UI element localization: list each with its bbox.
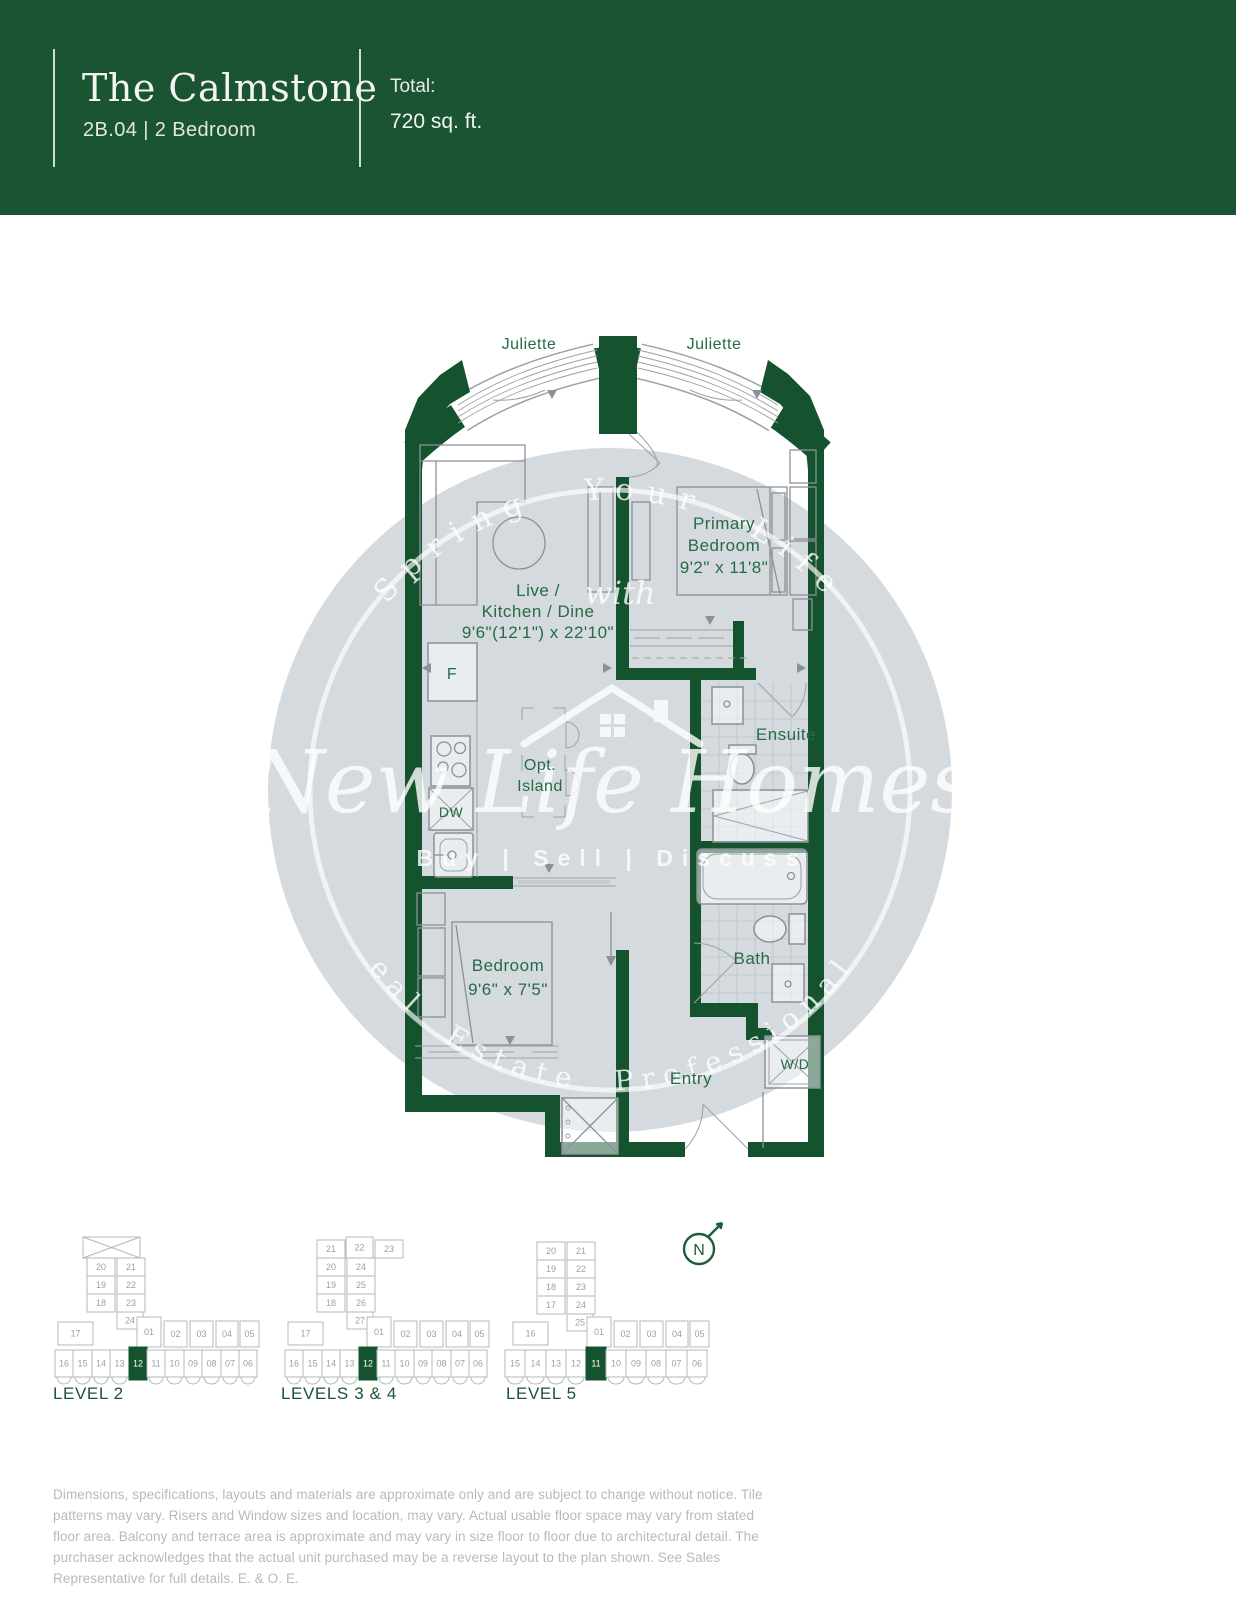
keyplan-unit-number: 05: [694, 1329, 704, 1339]
keyplan-unit-number: 13: [114, 1359, 124, 1369]
floorplan-sheet: The Calmstone 2B.04 | 2 Bedroom Total: 7…: [0, 0, 1236, 1600]
level-label-2: LEVEL 2: [53, 1384, 124, 1404]
keyplan-unit-number: 24: [125, 1316, 135, 1326]
keyplan-unit-number: 05: [474, 1329, 484, 1339]
label-live-line2: Kitchen / Dine: [482, 602, 595, 621]
keyplan-unit-number: 26: [356, 1298, 366, 1308]
keyplan-unit-number: 18: [546, 1282, 556, 1292]
keyplan-balcony-scallop: [241, 1377, 255, 1384]
label-island-line2: Island: [517, 778, 563, 795]
keyplan-unit-number: 13: [344, 1359, 354, 1369]
keyplan-balcony-scallop: [112, 1377, 127, 1384]
keyplan-unit-number: 06: [692, 1359, 702, 1369]
keyplan-balcony-scallop: [204, 1377, 219, 1384]
keyplan-unit-number: 10: [611, 1359, 621, 1369]
ensuite-sink: [712, 687, 743, 724]
label-island-line1: Opt.: [524, 757, 556, 774]
label-primary-line2: Bedroom: [688, 536, 760, 555]
keyplan-unit-number: 14: [326, 1359, 336, 1369]
keyplan-balcony-scallop: [568, 1377, 584, 1384]
north-label: N: [693, 1242, 705, 1259]
keyplan-balcony-scallop: [548, 1377, 564, 1384]
keyplan-unit-number: 08: [206, 1359, 216, 1369]
keyplan-unit-number: 06: [243, 1359, 253, 1369]
keyplan-unit-number: 10: [169, 1359, 179, 1369]
keyplan-balcony-scallop: [471, 1377, 485, 1384]
keyplan-unit-number: 07: [225, 1359, 235, 1369]
label-ensuite: Ensuite: [756, 725, 816, 744]
keyplan-unit-number: 19: [96, 1280, 106, 1290]
keyplan-unit-number: 12: [363, 1359, 373, 1369]
keyplan-unit-number: 10: [399, 1359, 409, 1369]
keyplan-unit-number: 16: [59, 1359, 69, 1369]
keyplan-unit-number: 23: [126, 1298, 136, 1308]
keyplan-unit-number: 04: [452, 1329, 462, 1339]
keyplan-unit-number: 27: [355, 1316, 365, 1326]
keyplan-balcony-scallop: [434, 1377, 449, 1384]
keyplan-balcony-scallop: [75, 1377, 90, 1384]
keyplan-unit-number: 03: [426, 1329, 436, 1339]
keyplan-unit-number: 03: [196, 1329, 206, 1339]
keyplan-balcony-scallop: [324, 1377, 338, 1384]
label-live-line1: Live /: [516, 581, 560, 600]
keyplan-level-2: 2021192218232417010203040516151413121110…: [55, 1237, 259, 1384]
label-washer-dryer: W/D: [781, 1056, 810, 1072]
juliette-window-right: [638, 350, 778, 423]
keyplan-unit-number: 25: [575, 1318, 585, 1328]
keyplan-unit-number: 09: [631, 1359, 641, 1369]
keyplan-unit-number: 01: [594, 1327, 604, 1337]
keyplan-balcony-scallop: [57, 1377, 71, 1384]
floorplan-svg: Spring Your Life with New Life Homes Buy…: [0, 0, 1236, 1600]
keyplan-unit-number: 21: [576, 1246, 586, 1256]
label-juliette-right: Juliette: [687, 336, 742, 353]
keyplan-balcony-scallop: [608, 1377, 624, 1384]
keyplan-unit-number: 03: [646, 1329, 656, 1339]
north-arrow: N: [684, 1223, 722, 1264]
keyplan-unit-number: 14: [530, 1359, 540, 1369]
keyplan-balcony-scallop: [648, 1377, 664, 1384]
keyplan-unit-number: 25: [356, 1280, 366, 1290]
keyplan-unit-number: 15: [510, 1359, 520, 1369]
keyplan-unit-number: 08: [436, 1359, 446, 1369]
keyplan-unit-number: 07: [455, 1359, 465, 1369]
keyplan-unit-number: 20: [546, 1246, 556, 1256]
keyplan-unit-number: 04: [672, 1329, 682, 1339]
keyplan-balcony-scallop: [342, 1377, 357, 1384]
keyplan-unit-number: 18: [326, 1298, 336, 1308]
label-live-dims: 9'6"(12'1") x 22'10": [462, 623, 614, 642]
keyplan-unit-number: 14: [96, 1359, 106, 1369]
keyplan-balcony-scallop: [379, 1377, 393, 1384]
keyplan-unit-number: 21: [126, 1262, 136, 1272]
keyplan-balcony-scallop: [416, 1377, 430, 1384]
keyplan-unit-number: 02: [620, 1329, 630, 1339]
level-label-5: LEVEL 5: [506, 1384, 577, 1404]
keyplan-unit-number: 07: [671, 1359, 681, 1369]
label-bath: Bath: [734, 949, 771, 968]
keyplan-unit-number: 22: [354, 1243, 364, 1253]
keyplan-balcony-scallop: [94, 1377, 108, 1384]
disclaimer-text: Dimensions, specifications, layouts and …: [53, 1484, 765, 1589]
level-label-3-4: LEVELS 3 & 4: [281, 1384, 397, 1404]
keyplan-unit-number: 22: [576, 1264, 586, 1274]
keyplan-unit-number: 23: [384, 1244, 394, 1254]
keyplan-unit-number: 16: [289, 1359, 299, 1369]
keyplan-unit-number: 17: [546, 1300, 556, 1310]
keyplan-levels-3-4: 2122232024192518262717010203040516151413…: [285, 1237, 489, 1384]
keyplan-balcony-scallop: [668, 1377, 685, 1384]
label-primary-dims: 9'2" x 11'8": [680, 558, 769, 577]
keyplan-unit-number: 17: [70, 1329, 80, 1339]
keyplan-unit-number: 13: [551, 1359, 561, 1369]
keyplan-balcony-scallop: [305, 1377, 320, 1384]
keyplan-unit-number: 04: [222, 1329, 232, 1339]
keyplan-unit-number: 11: [151, 1359, 160, 1369]
keyplan-unit-number: 24: [356, 1262, 366, 1272]
keyplan-unit-number: 19: [326, 1280, 336, 1290]
keyplan-unit-number: 12: [571, 1359, 581, 1369]
label-primary-line1: Primary: [693, 514, 755, 533]
keyplan-unit-number: 17: [300, 1329, 310, 1339]
keyplan-balcony-scallop: [186, 1377, 200, 1384]
entry-closet: [562, 1098, 618, 1154]
keyplan-unit-number: 09: [418, 1359, 428, 1369]
keyplan-unit-number: 11: [381, 1359, 390, 1369]
label-bedroom-dims: 9'6" x 7'5": [468, 980, 548, 999]
watermark-brand: New Life Homes: [247, 733, 974, 833]
keyplan-unit-number: 11: [591, 1359, 600, 1369]
label-entry: Entry: [670, 1069, 712, 1088]
keyplans: 2021192218232417010203040516151413121110…: [55, 1237, 709, 1384]
keyplan-balcony-scallop: [167, 1377, 182, 1384]
keyplan-unit-number: 16: [525, 1329, 535, 1339]
toilet-icon: [754, 916, 786, 942]
label-dishwasher: DW: [439, 804, 464, 820]
keyplan-unit-number: 20: [96, 1262, 106, 1272]
keyplan-balcony-scallop: [689, 1377, 705, 1384]
keyplan-balcony-scallop: [397, 1377, 412, 1384]
juliette-window-left: [458, 350, 597, 423]
label-bedroom: Bedroom: [472, 956, 544, 975]
keyplan-unit-number: 15: [307, 1359, 317, 1369]
toilet-tank: [789, 914, 805, 944]
center-pier: [599, 336, 637, 434]
keyplan-unit-number: 06: [473, 1359, 483, 1369]
keyplan-unit-number: 21: [326, 1244, 336, 1254]
keyplan-level-5: 2021192218231724251601020304051514131211…: [505, 1242, 709, 1384]
keyplan-unit-number: 24: [576, 1300, 586, 1310]
keyplan-unit-number: 18: [96, 1298, 106, 1308]
keyplan-unit-number: 20: [326, 1262, 336, 1272]
keyplan-balcony-scallop: [507, 1377, 523, 1384]
keyplan-unit-number: 15: [77, 1359, 87, 1369]
keyplan-balcony-scallop: [527, 1377, 544, 1384]
keyplan-balcony-scallop: [149, 1377, 163, 1384]
keyplan-unit-number: 02: [170, 1329, 180, 1339]
watermark-tagline: Buy | Sell | Discuss: [416, 845, 807, 871]
label-juliette-left: Juliette: [502, 336, 557, 353]
keyplan-unit-number: 22: [126, 1280, 136, 1290]
keyplan-unit-number: 12: [133, 1359, 143, 1369]
keyplan-unit-number: 01: [374, 1327, 384, 1337]
keyplan-balcony-scallop: [453, 1377, 467, 1384]
keyplan-balcony-scallop: [287, 1377, 301, 1384]
keyplan-balcony-scallop: [628, 1377, 644, 1384]
keyplan-balcony-scallop: [223, 1377, 237, 1384]
keyplan-unit-number: 19: [546, 1264, 556, 1274]
keyplan-unit-number: 09: [188, 1359, 198, 1369]
keyplan-unit-number: 08: [651, 1359, 661, 1369]
keyplan-unit-number: 05: [244, 1329, 254, 1339]
keyplan-unit-number: 01: [144, 1327, 154, 1337]
watermark-with: with: [584, 574, 655, 612]
label-fridge: F: [447, 666, 457, 683]
keyplan-unit-number: 02: [400, 1329, 410, 1339]
keyplan-unit-number: 23: [576, 1282, 586, 1292]
